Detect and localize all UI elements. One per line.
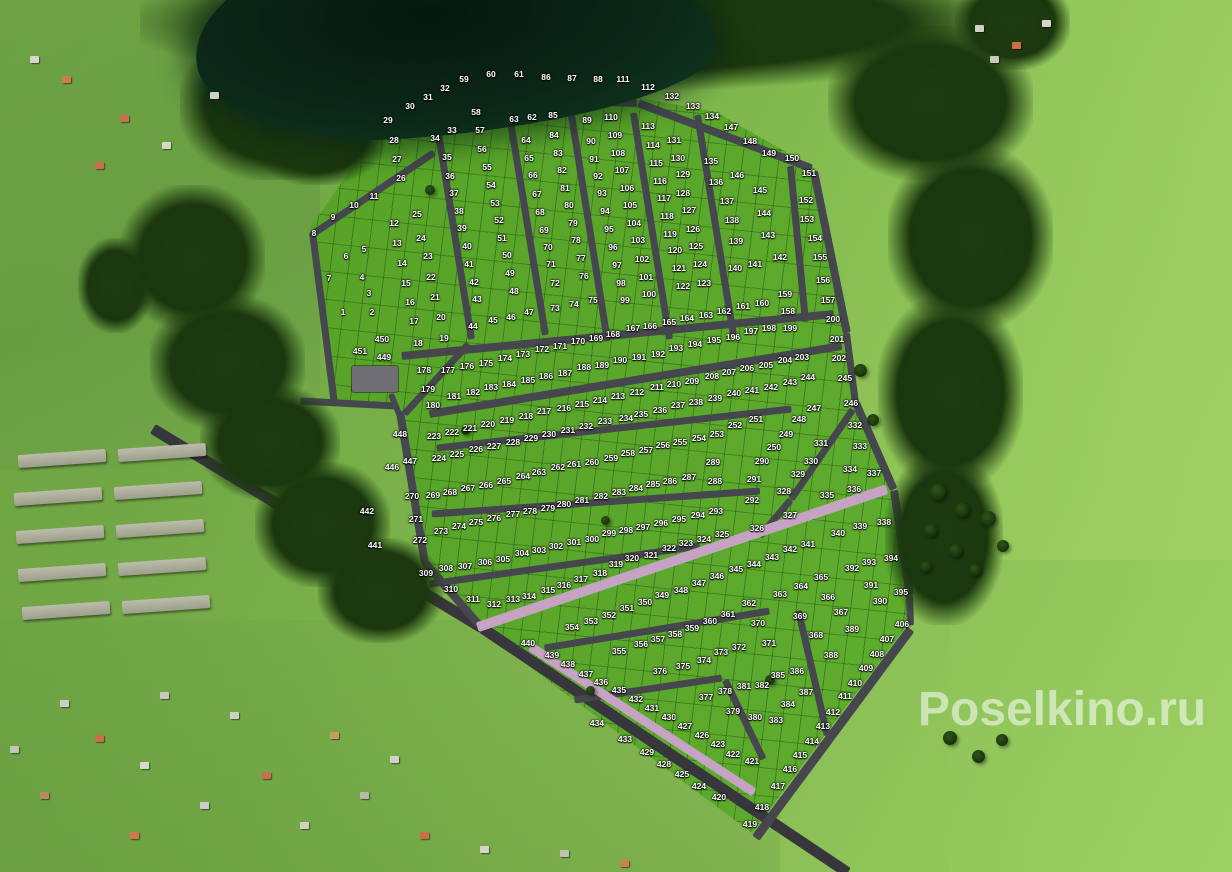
- plot-label: 36: [445, 172, 454, 181]
- plot-label: 383: [769, 716, 783, 725]
- plot-label: 35: [442, 153, 451, 162]
- plot-label: 305: [496, 555, 510, 564]
- plot-label: 19: [439, 334, 448, 343]
- plot-label: 4: [360, 273, 365, 282]
- plot-label: 138: [725, 216, 739, 225]
- plot-label: 252: [728, 421, 742, 430]
- plot-label: 324: [697, 535, 711, 544]
- plot-label: 200: [826, 315, 840, 324]
- plot-label: 290: [755, 457, 769, 466]
- plot-label: 316: [557, 581, 571, 590]
- plot-label: 381: [737, 682, 751, 691]
- plot-label: 369: [793, 612, 807, 621]
- settlement-master-plan-map: 1234567891011121314151617181920212223242…: [0, 0, 1232, 872]
- plot-label: 144: [757, 209, 771, 218]
- plot-label: 89: [582, 116, 591, 125]
- plot-label: 55: [482, 163, 491, 172]
- plot-label: 375: [676, 662, 690, 671]
- plot-label: 267: [461, 484, 475, 493]
- plot-label: 59: [459, 75, 468, 84]
- plot-label: 199: [783, 324, 797, 333]
- plot-label: 230: [542, 430, 556, 439]
- plot-label: 225: [450, 450, 464, 459]
- plot-label: 238: [689, 398, 703, 407]
- plot-label: 61: [514, 70, 523, 79]
- plot-label: 419: [743, 820, 757, 829]
- plot-label: 263: [532, 468, 546, 477]
- plot-label: 25: [412, 210, 421, 219]
- plot-label: 272: [413, 536, 427, 545]
- plot-label: 448: [393, 430, 407, 439]
- plot-label: 377: [699, 693, 713, 702]
- plot-label: 297: [636, 523, 650, 532]
- plot-label: 189: [595, 361, 609, 370]
- plot-label: 136: [709, 178, 723, 187]
- plot-label: 446: [385, 463, 399, 472]
- plot-label: 198: [762, 324, 776, 333]
- plot-label: 119: [663, 230, 677, 239]
- plot-label: 193: [669, 344, 683, 353]
- plot-label: 338: [877, 518, 891, 527]
- plot-label: 105: [623, 201, 637, 210]
- plot-label: 203: [795, 353, 809, 362]
- plot-label: 265: [497, 477, 511, 486]
- plot-label: 255: [673, 438, 687, 447]
- plot-label: 231: [561, 426, 575, 435]
- plot-label: 303: [532, 546, 546, 555]
- plot-label: 335: [820, 491, 834, 500]
- plot-label: 169: [589, 334, 603, 343]
- plot-label: 6: [344, 252, 349, 261]
- plot-label: 211: [650, 383, 664, 392]
- plot-label: 266: [479, 481, 493, 490]
- plot-label: 332: [848, 421, 862, 430]
- plot-label: 276: [487, 514, 501, 523]
- plot-label: 442: [360, 507, 374, 516]
- plot-label: 438: [561, 660, 575, 669]
- plot-label: 39: [457, 224, 466, 233]
- plot-label: 158: [781, 307, 795, 316]
- plot-label: 373: [714, 648, 728, 657]
- plot-label: 280: [557, 500, 571, 509]
- plot-label: 22: [426, 273, 435, 282]
- plot-label: 394: [884, 554, 898, 563]
- plot-label: 175: [479, 359, 493, 368]
- plot-label: 365: [814, 573, 828, 582]
- plot-label: 315: [541, 586, 555, 595]
- plot-label: 415: [793, 751, 807, 760]
- plot-label: 9: [331, 213, 336, 222]
- plot-label: 248: [792, 415, 806, 424]
- plot-label: 80: [564, 201, 573, 210]
- plot-label: 141: [748, 260, 762, 269]
- plot-label: 143: [761, 231, 775, 240]
- plot-label: 30: [405, 102, 414, 111]
- plot-label: 43: [472, 295, 481, 304]
- plot-label: 318: [593, 569, 607, 578]
- plot-label: 249: [779, 430, 793, 439]
- plot-label: 425: [675, 770, 689, 779]
- plot-label: 13: [392, 239, 401, 248]
- plot-label: 60: [486, 70, 495, 79]
- plot-label: 132: [665, 92, 679, 101]
- plot-label: 363: [773, 590, 787, 599]
- plot-label: 384: [781, 700, 795, 709]
- plot-label: 183: [484, 383, 498, 392]
- plot-label: 210: [667, 380, 681, 389]
- plot-label: 345: [729, 565, 743, 574]
- plot-label: 277: [506, 510, 520, 519]
- plot-label: 154: [808, 234, 822, 243]
- plot-label: 246: [844, 399, 858, 408]
- plot-label: 326: [750, 524, 764, 533]
- plot-label: 137: [720, 197, 734, 206]
- plot-label: 395: [894, 588, 908, 597]
- plot-label: 282: [594, 492, 608, 501]
- plot-label: 76: [579, 272, 588, 281]
- plot-label: 286: [663, 477, 677, 486]
- plot-label: 344: [747, 560, 761, 569]
- plot-label: 221: [463, 424, 477, 433]
- plot-label: 413: [816, 722, 830, 731]
- plot-label: 194: [688, 340, 702, 349]
- plot-label: 431: [645, 704, 659, 713]
- plot-label: 166: [643, 322, 657, 331]
- plot-label: 188: [577, 363, 591, 372]
- plot-label: 127: [682, 206, 696, 215]
- plot-label: 366: [821, 593, 835, 602]
- plot-label: 293: [709, 507, 723, 516]
- plot-label: 390: [873, 597, 887, 606]
- plot-label: 74: [569, 300, 578, 309]
- plot-label: 294: [691, 511, 705, 520]
- plot-label: 186: [539, 372, 553, 381]
- plot-label: 229: [524, 434, 538, 443]
- plot-label: 27: [392, 155, 401, 164]
- plot-label: 440: [521, 639, 535, 648]
- plot-label: 430: [662, 713, 676, 722]
- plot-label: 247: [807, 404, 821, 413]
- plot-label: 78: [571, 236, 580, 245]
- plot-label: 95: [604, 225, 613, 234]
- plot-label: 242: [764, 383, 778, 392]
- plot-label: 433: [618, 735, 632, 744]
- plot-label: 325: [715, 530, 729, 539]
- plot-label: 191: [632, 353, 646, 362]
- plot-label: 173: [516, 350, 530, 359]
- plot-label: 428: [657, 760, 671, 769]
- plot-label: 347: [692, 579, 706, 588]
- plot-label: 51: [497, 234, 506, 243]
- plot-label: 307: [458, 562, 472, 571]
- plot-label: 449: [377, 353, 391, 362]
- plot-label: 233: [598, 417, 612, 426]
- plot-label: 124: [693, 260, 707, 269]
- plot-label: 411: [838, 692, 852, 701]
- plot-label: 353: [584, 617, 598, 626]
- plot-label: 110: [604, 113, 618, 122]
- plot-label: 184: [502, 380, 516, 389]
- plot-label: 167: [626, 324, 640, 333]
- plot-label: 237: [671, 401, 685, 410]
- plot-label: 342: [783, 545, 797, 554]
- plot-label: 416: [783, 765, 797, 774]
- plot-label: 434: [590, 719, 604, 728]
- plot-label: 253: [710, 430, 724, 439]
- plot-label: 299: [602, 529, 616, 538]
- plot-label: 62: [527, 113, 536, 122]
- plot-label: 196: [726, 333, 740, 342]
- plot-label: 360: [703, 617, 717, 626]
- plot-label: 219: [500, 416, 514, 425]
- plot-label: 410: [848, 679, 862, 688]
- plot-label: 356: [634, 640, 648, 649]
- plot-label: 145: [753, 186, 767, 195]
- plot-label: 240: [727, 389, 741, 398]
- plot-label: 174: [498, 354, 512, 363]
- plot-label: 204: [778, 356, 792, 365]
- plot-label: 48: [509, 287, 518, 296]
- plot-label: 391: [864, 581, 878, 590]
- plot-label: 348: [674, 586, 688, 595]
- plot-label: 107: [615, 166, 629, 175]
- plot-label: 295: [672, 515, 686, 524]
- plot-label: 251: [749, 415, 763, 424]
- plot-label: 18: [413, 339, 422, 348]
- plot-label: 389: [845, 625, 859, 634]
- plot-label: 407: [880, 635, 894, 644]
- plot-label: 155: [813, 253, 827, 262]
- plot-label: 68: [535, 208, 544, 217]
- plot-label: 288: [708, 477, 722, 486]
- plot-label: 334: [843, 465, 857, 474]
- plot-label: 178: [417, 366, 431, 375]
- plot-label: 109: [608, 131, 622, 140]
- plot-label: 343: [765, 553, 779, 562]
- plot-label: 259: [604, 454, 618, 463]
- plot-label: 205: [759, 361, 773, 370]
- plot-label: 372: [732, 643, 746, 652]
- plot-label: 239: [708, 394, 722, 403]
- plot-label: 1: [341, 308, 346, 317]
- plot-label: 147: [724, 123, 738, 132]
- plot-label: 47: [524, 308, 533, 317]
- plot-label: 241: [745, 386, 759, 395]
- plot-label: 331: [814, 439, 828, 448]
- plot-label: 376: [653, 667, 667, 676]
- plot-label: 216: [557, 404, 571, 413]
- plot-label: 257: [639, 446, 653, 455]
- plot-label: 150: [785, 154, 799, 163]
- plot-label: 300: [585, 535, 599, 544]
- plot-label: 99: [620, 296, 629, 305]
- plot-label: 84: [549, 131, 558, 140]
- plot-label: 371: [762, 639, 776, 648]
- plot-label: 283: [612, 488, 626, 497]
- plot-label: 64: [521, 136, 530, 145]
- plot-label: 258: [621, 449, 635, 458]
- plot-label: 58: [471, 108, 480, 117]
- plot-label: 274: [452, 522, 466, 531]
- plot-label: 125: [689, 242, 703, 251]
- plot-label: 41: [464, 260, 473, 269]
- plot-label: 436: [594, 678, 608, 687]
- plot-label: 269: [426, 491, 440, 500]
- plot-label: 139: [729, 237, 743, 246]
- plot-label: 117: [657, 194, 671, 203]
- plot-label: 16: [405, 298, 414, 307]
- plot-label: 72: [550, 279, 559, 288]
- plot-label: 26: [396, 174, 405, 183]
- plot-label: 208: [705, 372, 719, 381]
- plot-label: 380: [748, 713, 762, 722]
- plot-label: 181: [447, 392, 461, 401]
- plot-label: 406: [895, 620, 909, 629]
- plot-label: 364: [794, 582, 808, 591]
- plot-label: 57: [475, 126, 484, 135]
- plot-label: 262: [551, 463, 565, 472]
- plot-label: 177: [441, 366, 455, 375]
- plot-label: 134: [705, 112, 719, 121]
- plot-label: 213: [611, 392, 625, 401]
- plot-label: 264: [516, 472, 530, 481]
- plot-label: 341: [801, 540, 815, 549]
- plot-label: 97: [612, 261, 621, 270]
- plot-label: 350: [638, 598, 652, 607]
- plot-label: 81: [560, 184, 569, 193]
- plot-label: 206: [740, 364, 754, 373]
- plot-label: 234: [619, 414, 633, 423]
- plot-label: 202: [832, 354, 846, 363]
- plot-label: 56: [477, 145, 486, 154]
- plot-label: 63: [509, 115, 518, 124]
- plot-label: 116: [653, 177, 667, 186]
- plot-label: 67: [532, 190, 541, 199]
- plot-label: 254: [692, 434, 706, 443]
- plot-label: 20: [436, 313, 445, 322]
- watermark-text: Poselkino.ru: [918, 682, 1206, 737]
- plot-label: 222: [445, 428, 459, 437]
- plot-label: 71: [546, 260, 555, 269]
- plot-label: 278: [523, 507, 537, 516]
- plot-label: 306: [478, 558, 492, 567]
- plot-label: 367: [834, 608, 848, 617]
- plot-label: 355: [612, 647, 626, 656]
- plot-label: 102: [635, 255, 649, 264]
- plot-label: 409: [859, 664, 873, 673]
- plot-label: 94: [600, 207, 609, 216]
- plot-label: 37: [449, 189, 458, 198]
- plot-label: 83: [553, 149, 562, 158]
- plot-label: 235: [634, 410, 648, 419]
- plot-label: 339: [853, 522, 867, 531]
- plot-label: 392: [845, 564, 859, 573]
- plot-label: 90: [586, 137, 595, 146]
- plot-label: 386: [790, 667, 804, 676]
- plot-label: 370: [751, 619, 765, 628]
- plot-label: 112: [641, 83, 655, 92]
- plot-label: 23: [423, 252, 432, 261]
- plot-label: 53: [490, 199, 499, 208]
- plot-label: 321: [644, 551, 658, 560]
- plot-label: 111: [616, 75, 629, 84]
- plot-label: 275: [469, 518, 483, 527]
- plot-label: 130: [671, 154, 685, 163]
- plot-label: 148: [743, 137, 757, 146]
- plot-label: 368: [809, 631, 823, 640]
- plot-label: 128: [676, 189, 690, 198]
- plot-label: 447: [403, 457, 417, 466]
- plot-label: 133: [686, 102, 700, 111]
- plot-label: 92: [593, 172, 602, 181]
- plot-label: 79: [568, 219, 577, 228]
- plot-label: 346: [710, 572, 724, 581]
- plot-label: 54: [486, 181, 495, 190]
- plot-label: 285: [646, 480, 660, 489]
- plot-label: 388: [824, 651, 838, 660]
- plot-label: 32: [440, 84, 449, 93]
- plot-label: 374: [697, 656, 711, 665]
- plot-label: 330: [804, 457, 818, 466]
- plot-label: 118: [660, 212, 674, 221]
- plot-label: 40: [462, 242, 471, 251]
- plot-label: 361: [721, 610, 735, 619]
- plot-label: 439: [545, 651, 559, 660]
- plot-label: 195: [707, 336, 721, 345]
- plot-label: 140: [728, 264, 742, 273]
- plot-label: 85: [548, 111, 557, 120]
- plot-label: 311: [466, 595, 480, 604]
- plot-label: 14: [397, 259, 406, 268]
- plot-label: 82: [557, 166, 566, 175]
- plot-label: 88: [593, 75, 602, 84]
- plot-label: 243: [783, 378, 797, 387]
- plot-label: 69: [539, 226, 548, 235]
- plot-label: 312: [487, 600, 501, 609]
- plot-label: 50: [502, 251, 511, 260]
- plot-label: 126: [686, 225, 700, 234]
- plot-label: 387: [799, 688, 813, 697]
- plot-label: 317: [574, 575, 588, 584]
- plot-label: 352: [602, 611, 616, 620]
- plot-label: 168: [606, 330, 620, 339]
- plot-label: 87: [567, 74, 576, 83]
- plot-label: 270: [405, 492, 419, 501]
- plot-label: 96: [608, 243, 617, 252]
- plot-label: 197: [744, 327, 758, 336]
- plot-label: 227: [487, 442, 501, 451]
- plot-label: 159: [778, 290, 792, 299]
- plot-label: 212: [630, 388, 644, 397]
- plot-label: 450: [375, 335, 389, 344]
- plot-label: 190: [613, 356, 627, 365]
- plot-label: 218: [519, 412, 533, 421]
- plot-label: 304: [515, 549, 529, 558]
- plot-label: 417: [771, 782, 785, 791]
- plot-label: 215: [575, 400, 589, 409]
- plot-label: 42: [469, 278, 478, 287]
- plot-label: 228: [506, 438, 520, 447]
- plot-label: 12: [389, 219, 398, 228]
- plot-label: 120: [668, 246, 682, 255]
- plot-label: 333: [853, 442, 867, 451]
- plot-label: 115: [649, 159, 663, 168]
- plot-label: 414: [805, 737, 819, 746]
- plot-label: 114: [646, 141, 660, 150]
- plot-label: 146: [730, 171, 744, 180]
- plot-label: 8: [312, 229, 317, 238]
- plot-label: 302: [549, 542, 563, 551]
